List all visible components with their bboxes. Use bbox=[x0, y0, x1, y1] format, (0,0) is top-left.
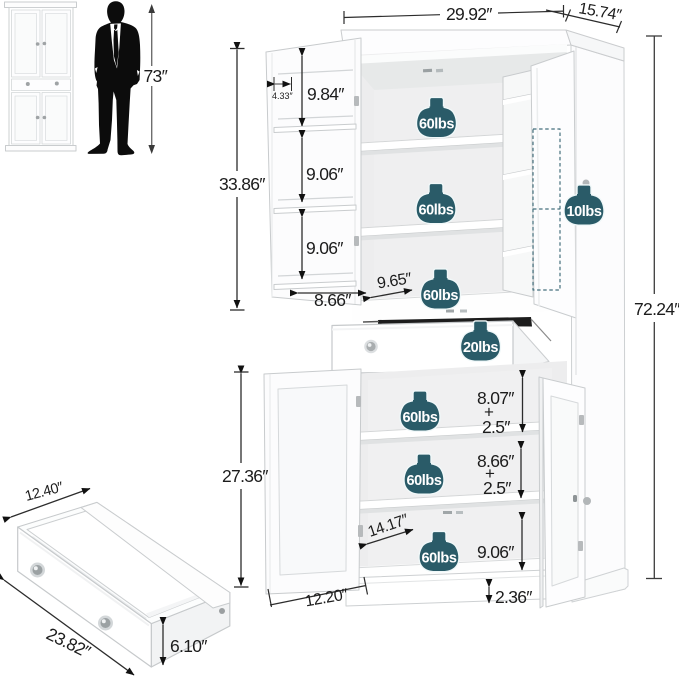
svg-text:60lbs: 60lbs bbox=[418, 203, 453, 219]
svg-text:33.86″: 33.86″ bbox=[219, 174, 265, 194]
svg-text:8.07″: 8.07″ bbox=[477, 388, 514, 408]
svg-text:9.84″: 9.84″ bbox=[307, 84, 344, 104]
svg-text:9.06″: 9.06″ bbox=[477, 542, 514, 562]
svg-text:27.36″: 27.36″ bbox=[222, 466, 268, 486]
svg-text:72.24″: 72.24″ bbox=[634, 299, 679, 319]
svg-text:60lbs: 60lbs bbox=[402, 410, 437, 426]
svg-text:10lbs: 10lbs bbox=[566, 204, 601, 220]
svg-text:60lbs: 60lbs bbox=[406, 473, 441, 489]
svg-text:2.5″: 2.5″ bbox=[483, 478, 511, 498]
svg-text:8.66″: 8.66″ bbox=[314, 290, 351, 310]
svg-text:2.5″: 2.5″ bbox=[482, 417, 510, 437]
svg-text:6.10″: 6.10″ bbox=[170, 636, 207, 656]
svg-text:60lbs: 60lbs bbox=[421, 551, 456, 567]
svg-text:9.06″: 9.06″ bbox=[306, 164, 343, 184]
svg-text:29.92″: 29.92″ bbox=[446, 4, 492, 24]
svg-text:60lbs: 60lbs bbox=[419, 117, 454, 133]
svg-text:9.06″: 9.06″ bbox=[306, 238, 343, 258]
svg-text:2.36″: 2.36″ bbox=[495, 587, 532, 607]
svg-text:60lbs: 60lbs bbox=[423, 288, 458, 304]
svg-text:4.33″: 4.33″ bbox=[272, 91, 294, 101]
svg-text:20lbs: 20lbs bbox=[463, 340, 498, 356]
svg-text:73″: 73″ bbox=[144, 66, 168, 86]
svg-text:8.66″: 8.66″ bbox=[477, 451, 514, 471]
